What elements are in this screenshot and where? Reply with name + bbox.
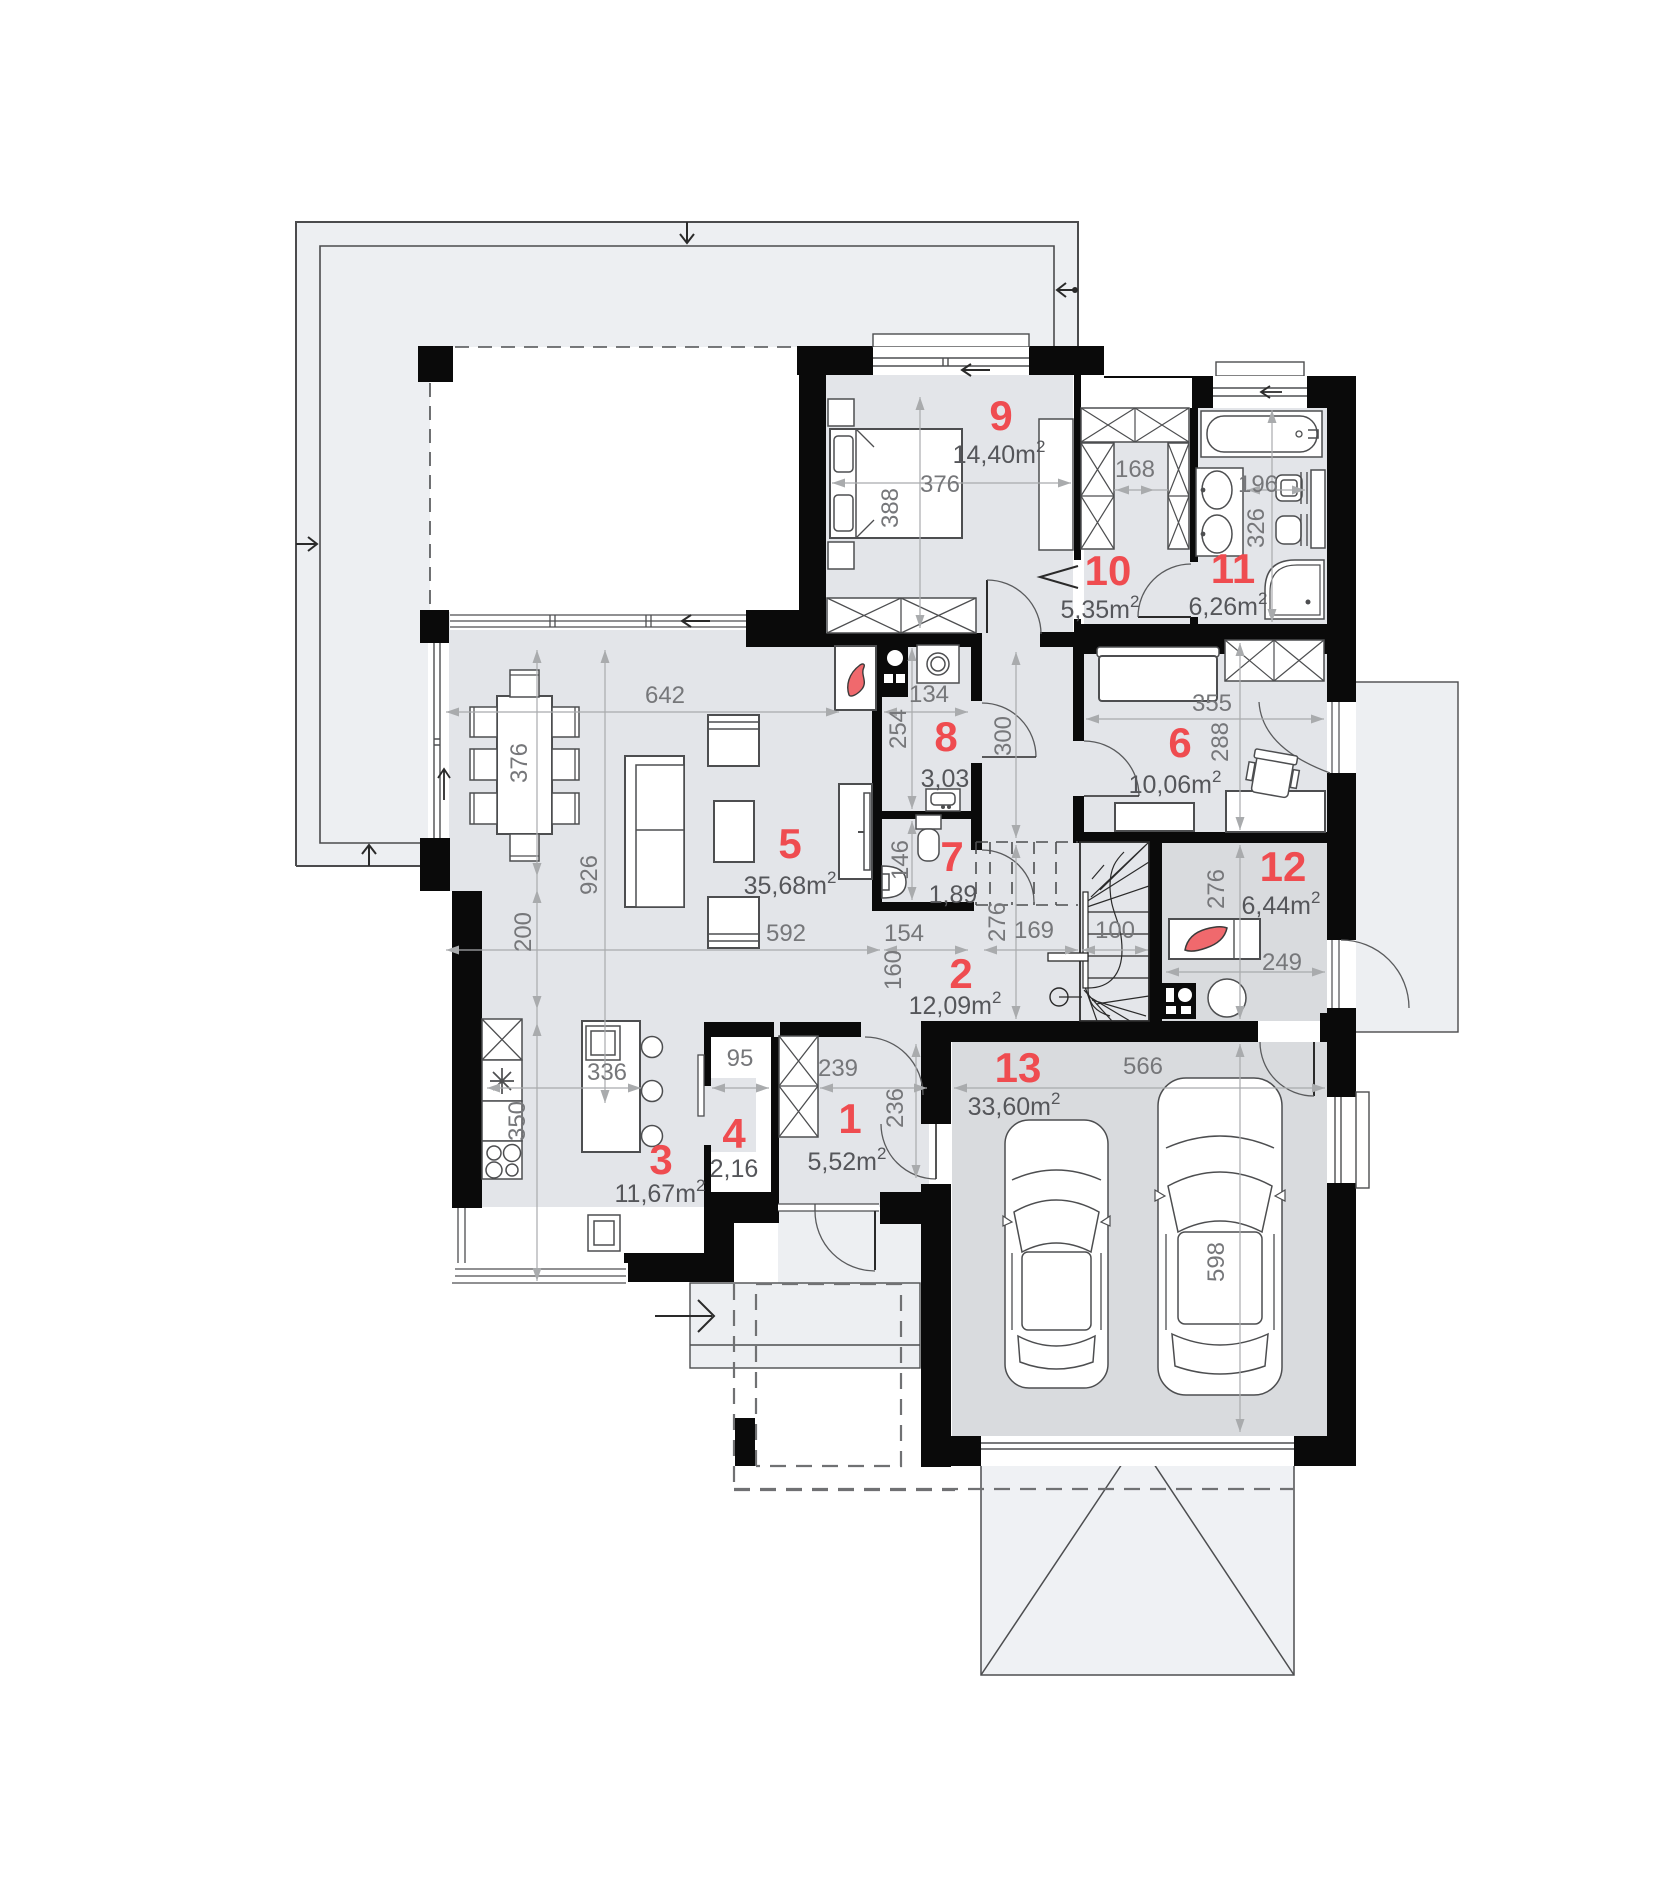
svg-text:95: 95	[727, 1045, 754, 1072]
svg-text:5: 5	[778, 820, 801, 867]
svg-text:169: 169	[1014, 917, 1054, 944]
svg-text:236: 236	[882, 1088, 909, 1128]
svg-text:10: 10	[1085, 547, 1132, 594]
svg-text:12,09m2: 12,09m2	[909, 988, 1002, 1020]
svg-text:926: 926	[576, 855, 603, 895]
svg-text:566: 566	[1123, 1053, 1163, 1080]
svg-text:336: 336	[587, 1059, 627, 1086]
svg-text:376: 376	[920, 471, 960, 498]
svg-text:11,67m2: 11,67m2	[615, 1176, 706, 1208]
svg-text:168: 168	[1115, 456, 1155, 483]
svg-text:326: 326	[1243, 508, 1270, 548]
svg-text:11: 11	[1211, 545, 1255, 592]
svg-text:6,26m2: 6,26m2	[1189, 589, 1268, 621]
svg-text:376: 376	[506, 743, 533, 783]
svg-text:598: 598	[1203, 1242, 1230, 1282]
svg-text:355: 355	[1192, 690, 1232, 717]
svg-text:35,68m2: 35,68m2	[744, 868, 837, 900]
svg-text:254: 254	[885, 709, 912, 749]
svg-text:300: 300	[990, 716, 1017, 756]
svg-text:100: 100	[1095, 917, 1135, 944]
svg-text:2,16: 2,16	[710, 1155, 759, 1183]
svg-text:6,44m2: 6,44m2	[1242, 888, 1321, 920]
svg-text:9: 9	[989, 392, 1012, 439]
svg-text:154: 154	[884, 920, 924, 947]
svg-text:13: 13	[995, 1044, 1042, 1091]
svg-text:33,60m2: 33,60m2	[968, 1089, 1061, 1121]
svg-text:134: 134	[909, 681, 949, 708]
svg-text:5,52m2: 5,52m2	[808, 1144, 887, 1176]
svg-text:1,89: 1,89	[929, 881, 978, 909]
svg-text:4: 4	[722, 1110, 746, 1157]
svg-text:350: 350	[504, 1101, 531, 1141]
svg-text:249: 249	[1262, 949, 1302, 976]
svg-text:8: 8	[934, 713, 957, 760]
svg-text:2: 2	[949, 950, 972, 997]
svg-text:10,06m2: 10,06m2	[1129, 767, 1222, 799]
svg-text:642: 642	[645, 682, 685, 709]
svg-text:200: 200	[510, 912, 537, 952]
svg-text:3,03: 3,03	[921, 765, 970, 793]
svg-text:160: 160	[880, 950, 907, 990]
svg-text:276: 276	[1203, 869, 1230, 909]
svg-text:7: 7	[940, 833, 963, 880]
svg-text:592: 592	[766, 920, 806, 947]
svg-text:288: 288	[1207, 722, 1234, 762]
svg-text:14,40m2: 14,40m2	[953, 437, 1046, 469]
svg-text:5,35m2: 5,35m2	[1061, 592, 1140, 624]
svg-text:276: 276	[984, 902, 1011, 942]
svg-text:196: 196	[1238, 471, 1278, 498]
svg-text:388: 388	[877, 488, 904, 528]
svg-text:146: 146	[887, 840, 914, 880]
svg-text:12: 12	[1260, 843, 1307, 890]
svg-text:1: 1	[838, 1095, 861, 1142]
svg-text:239: 239	[818, 1055, 858, 1082]
svg-text:6: 6	[1168, 719, 1191, 766]
svg-text:3: 3	[649, 1136, 672, 1183]
